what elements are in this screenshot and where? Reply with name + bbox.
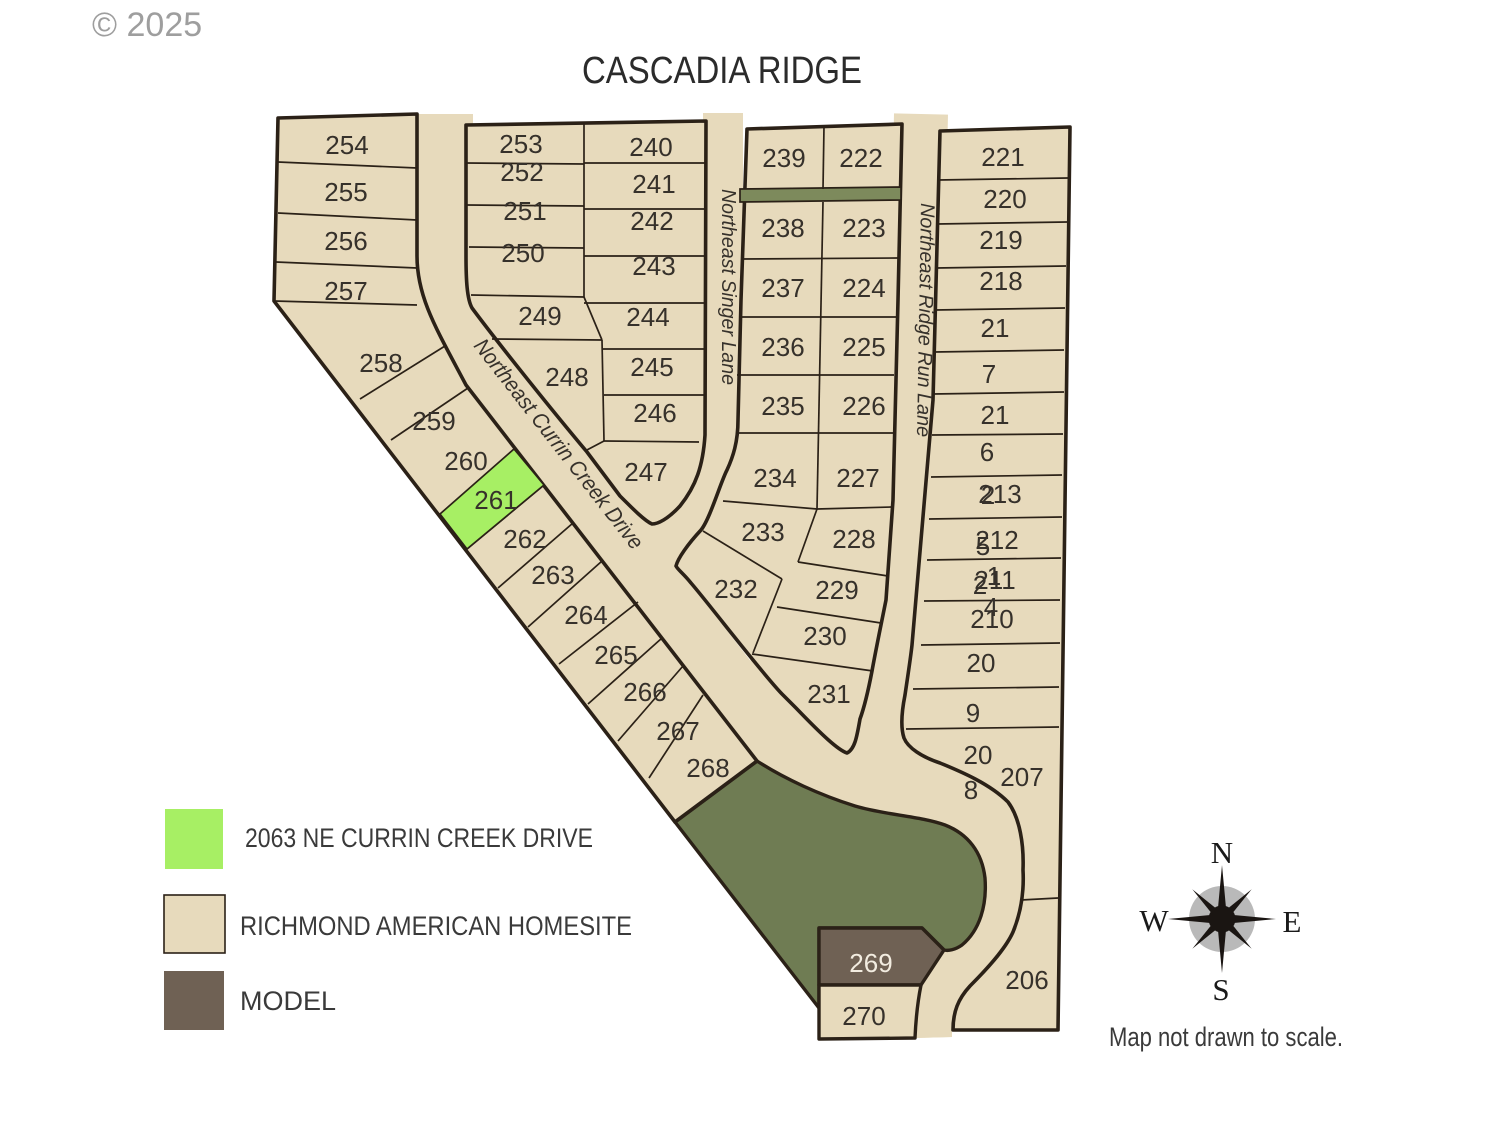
svg-text:234: 234 (753, 463, 796, 493)
svg-text:21: 21 (981, 400, 1010, 430)
svg-text:243: 243 (632, 251, 675, 281)
svg-text:20: 20 (964, 740, 993, 770)
svg-text:249: 249 (518, 301, 561, 331)
svg-text:219: 219 (979, 225, 1022, 255)
svg-text:235: 235 (761, 391, 804, 421)
svg-text:W: W (1139, 903, 1169, 938)
svg-text:206: 206 (1005, 965, 1048, 995)
svg-text:270: 270 (842, 1001, 885, 1031)
svg-text:RICHMOND AMERICAN HOMESITE: RICHMOND AMERICAN HOMESITE (240, 911, 632, 941)
svg-text:267: 267 (656, 716, 699, 746)
svg-text:21: 21 (981, 313, 1010, 343)
svg-text:8: 8 (964, 775, 978, 805)
svg-text:S: S (1212, 972, 1229, 1007)
svg-text:269: 269 (849, 948, 892, 978)
svg-text:221: 221 (981, 142, 1024, 172)
svg-text:245: 245 (630, 352, 673, 382)
svg-text:227: 227 (836, 463, 879, 493)
svg-text:258: 258 (359, 348, 402, 378)
svg-text:242: 242 (630, 206, 673, 236)
svg-text:251: 251 (503, 196, 546, 226)
svg-text:207: 207 (1000, 762, 1043, 792)
svg-text:241: 241 (632, 169, 675, 199)
svg-text:5: 5 (976, 531, 990, 561)
svg-text:E: E (1283, 904, 1302, 939)
svg-text:232: 232 (714, 574, 757, 604)
svg-text:238: 238 (761, 213, 804, 243)
svg-text:255: 255 (324, 177, 367, 207)
svg-text:263: 263 (531, 560, 574, 590)
svg-text:2: 2 (981, 480, 995, 510)
svg-text:Map not drawn to scale.: Map not drawn to scale. (1109, 1022, 1343, 1052)
svg-text:266: 266 (623, 677, 666, 707)
svg-text:252: 252 (500, 157, 543, 187)
svg-text:9: 9 (966, 698, 980, 728)
svg-text:2063 NE CURRIN CREEK DRIVE: 2063 NE CURRIN CREEK DRIVE (245, 823, 593, 853)
svg-text:226: 226 (842, 391, 885, 421)
svg-text:262: 262 (503, 524, 546, 554)
svg-text:265: 265 (594, 640, 637, 670)
svg-text:230: 230 (803, 621, 846, 651)
svg-text:4: 4 (984, 592, 998, 622)
svg-text:261: 261 (474, 485, 517, 515)
svg-text:240: 240 (629, 132, 672, 162)
svg-text:Northeast Ridge Run Lane: Northeast Ridge Run Lane (912, 203, 938, 437)
svg-text:250: 250 (501, 238, 544, 268)
svg-text:CASCADIA RIDGE: CASCADIA RIDGE (582, 50, 862, 92)
svg-text:229: 229 (815, 575, 858, 605)
svg-text:236: 236 (761, 332, 804, 362)
svg-text:254: 254 (325, 130, 368, 160)
svg-text:231: 231 (807, 679, 850, 709)
svg-text:20: 20 (967, 648, 996, 678)
svg-text:220: 220 (983, 184, 1026, 214)
svg-text:222: 222 (839, 143, 882, 173)
svg-text:268: 268 (686, 753, 729, 783)
svg-text:260: 260 (444, 446, 487, 476)
svg-text:224: 224 (842, 273, 885, 303)
svg-text:239: 239 (762, 143, 805, 173)
svg-text:256: 256 (324, 226, 367, 256)
svg-text:259: 259 (412, 406, 455, 436)
svg-text:N: N (1211, 835, 1233, 870)
svg-text:218: 218 (979, 266, 1022, 296)
svg-text:225: 225 (842, 332, 885, 362)
svg-text:237: 237 (761, 273, 804, 303)
svg-text:1: 1 (987, 561, 1001, 591)
svg-text:264: 264 (564, 600, 607, 630)
svg-text:257: 257 (324, 276, 367, 306)
svg-text:6: 6 (980, 437, 994, 467)
svg-text:7: 7 (982, 359, 996, 389)
svg-text:© 2025: © 2025 (92, 6, 202, 44)
svg-text:244: 244 (626, 302, 669, 332)
svg-text:247: 247 (624, 457, 667, 487)
svg-text:Northeast Singer Lane: Northeast Singer Lane (717, 189, 739, 385)
svg-text:MODEL: MODEL (240, 986, 336, 1016)
svg-text:248: 248 (545, 362, 588, 392)
svg-text:223: 223 (842, 213, 885, 243)
svg-text:246: 246 (633, 398, 676, 428)
svg-text:253: 253 (499, 129, 542, 159)
svg-text:228: 228 (832, 524, 875, 554)
svg-text:233: 233 (741, 517, 784, 547)
